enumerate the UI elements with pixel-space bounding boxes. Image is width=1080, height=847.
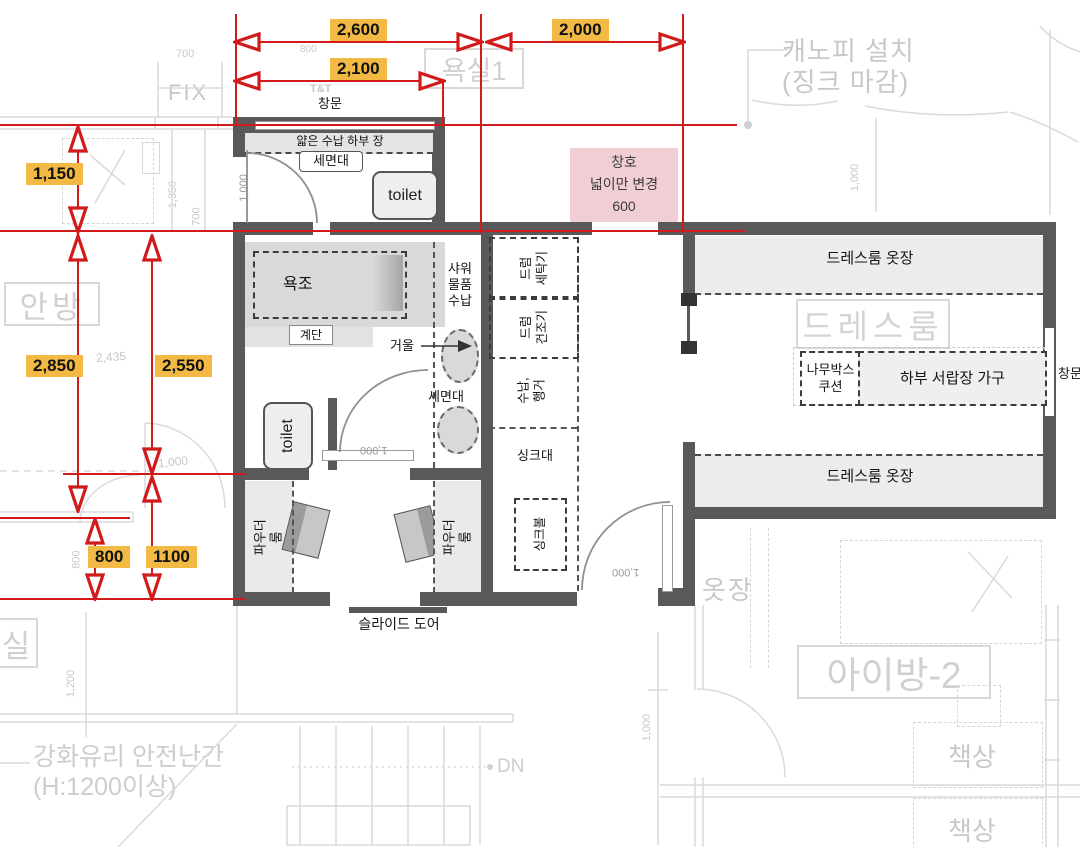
bg-tnt-label: T&T xyxy=(310,83,331,96)
bg-master-room-label: 안방 xyxy=(4,282,100,326)
bath1-door-dim: 1,000 xyxy=(237,160,253,215)
dress-left-wall-upper xyxy=(683,235,695,297)
sliding-door-label: 슬라이드 도어 xyxy=(339,617,459,633)
bath1-cabinet-label: 얇은 수납 하부 장 xyxy=(255,134,425,149)
laundry-hanger-label: 수납, 행거 xyxy=(495,364,569,418)
bath2-left-wall xyxy=(233,235,245,605)
bg-kids-line2 xyxy=(768,528,769,668)
dress-door-panel xyxy=(662,505,673,592)
dim-2850: 2,850 xyxy=(26,355,83,377)
dress-wood-box: 나무박스 쿠션 xyxy=(800,351,861,406)
bath2-shower-divider xyxy=(433,242,435,468)
laundry-washer: 드럼 세탁기 xyxy=(489,237,579,300)
dress-drawer-box: 하부 서랍장 가구 xyxy=(858,351,1047,406)
laundry-sink-bowl: 싱크볼 xyxy=(514,498,567,571)
bg-master-pillow xyxy=(142,142,160,174)
dress-pivot-line xyxy=(687,306,690,341)
bath2-mirror-label: 거울 xyxy=(383,338,421,354)
floor-plan-canvas: 700 FIX 800 T&T 욕실1 캐노피 설치 (징크 마감) 1,000… xyxy=(0,0,1080,847)
sliding-door-bar xyxy=(349,607,447,613)
bg-dim-800-top: 800 xyxy=(300,44,317,56)
bath2-tub-slope xyxy=(373,255,403,311)
corridor-window xyxy=(592,224,658,232)
bg-dn-label: DN xyxy=(497,756,524,779)
laundry-sink-label: 싱크대 xyxy=(500,448,570,464)
bath1-window xyxy=(255,121,435,130)
dim-2100: 2,100 xyxy=(330,58,387,80)
bg-dim-700: 700 xyxy=(176,48,194,61)
bg-canopy-label: 캐노피 설치 (징크 마감) xyxy=(782,36,915,98)
bg-kids-line1 xyxy=(750,528,751,668)
powder-top-wall-b xyxy=(410,468,493,480)
powder-left-divider xyxy=(292,481,294,593)
powder-right-label: 파우더룸 xyxy=(434,481,481,593)
dress-window-label: 창문 xyxy=(1058,366,1080,382)
dress-closet-top-label: 드레스룸 옷장 xyxy=(780,250,960,269)
dim-2000: 2,000 xyxy=(552,19,609,41)
bg-sil-label: 실 xyxy=(0,618,38,668)
dress-closet-bottom-label: 드레스룸 옷장 xyxy=(780,468,960,487)
bg-kids-bed xyxy=(840,540,1042,644)
bottom-wall-a xyxy=(233,592,330,606)
bg-dim-1000-canopy: 1,000 xyxy=(848,152,864,204)
bg-rail-label: 강화유리 안전난간 (H:1200이상) xyxy=(33,742,224,802)
dress-bottom-wall xyxy=(683,505,1056,519)
bg-dim-1200: 1,200 xyxy=(58,660,74,708)
bath2-shower-label: 샤워 물품 수납 xyxy=(437,256,483,314)
bg-bath1-old-label: 욕실1 xyxy=(424,48,524,89)
dress-door-dim: 1,000 xyxy=(602,564,650,577)
bath2-mirror-oval xyxy=(441,329,479,383)
dress-top-wall xyxy=(683,222,1056,235)
dress-left-wall-lower xyxy=(683,442,695,606)
bath2-toilet: toilet xyxy=(263,402,313,470)
bath2-tub: 욕조 xyxy=(253,251,407,319)
background-lines xyxy=(0,0,1080,847)
powder-top-wall-a xyxy=(233,468,309,480)
bath2-door-dim: 1,000 xyxy=(350,442,398,455)
laundry-hanger-line xyxy=(489,427,577,429)
bath2-step-label: 계단 xyxy=(289,325,333,345)
dim-2600: 2,600 xyxy=(330,19,387,41)
bg-dim-1350: 1,350 xyxy=(160,175,174,215)
mid-wall-a xyxy=(233,222,313,235)
red-dimension-lines xyxy=(0,0,1080,847)
dim-1100: 1100 xyxy=(146,546,197,568)
door-arcs xyxy=(0,0,1080,847)
bg-desk1-label: 책상 xyxy=(948,742,996,773)
bg-dim-2435: 2,435 xyxy=(96,349,127,365)
bg-dim-1000-master: 1,000 xyxy=(157,453,188,470)
mid-wall-c xyxy=(658,222,683,235)
note-window-change: 창호 넓이만 변경 600 xyxy=(570,148,678,222)
dress-pivot-b xyxy=(681,341,697,354)
dim-800: 800 xyxy=(88,546,130,568)
bg-desk2-label: 책상 xyxy=(948,816,996,847)
mid-wall-b xyxy=(330,222,592,235)
bath1-window-label: 창문 xyxy=(295,96,365,112)
bg-fix-label: FIX xyxy=(168,80,208,106)
dim-2550: 2,550 xyxy=(155,355,212,377)
dress-room-label: 드레스룸 xyxy=(796,299,950,349)
bath2-basin-label: 세면대 xyxy=(421,389,471,405)
bg-dim-700b: 700 xyxy=(188,202,202,232)
bath2-basin-oval xyxy=(437,406,479,454)
laundry-dryer: 드럼 건조기 xyxy=(489,296,579,359)
powder-left-label: 파우더룸 xyxy=(245,481,292,593)
bath1-toilet: toilet xyxy=(372,171,438,220)
dim-1150: 1,150 xyxy=(26,163,83,185)
bg-kids-chair xyxy=(957,685,1001,727)
bath1-basin: 세면대 xyxy=(299,151,363,172)
bottom-wall-b xyxy=(420,592,577,606)
bg-dim-1000-kids: 1,000 xyxy=(634,700,650,756)
bg-closet-label: 옷장 xyxy=(702,575,754,606)
bg-dim-800-left: 800 xyxy=(68,542,82,578)
